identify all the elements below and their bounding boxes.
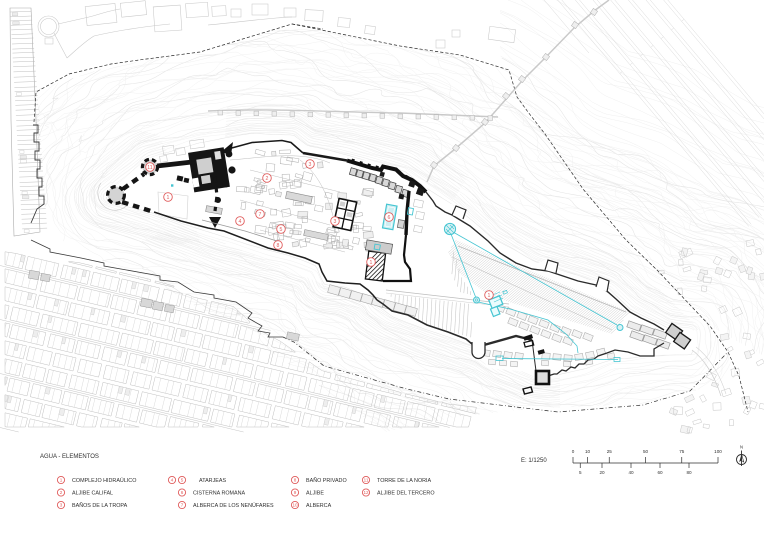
svg-text:8: 8 [294, 478, 297, 483]
svg-text:1: 1 [167, 195, 170, 201]
svg-text:ATARJEAS: ATARJEAS [199, 478, 226, 484]
svg-text:25: 25 [607, 449, 613, 454]
svg-text:9: 9 [294, 490, 297, 495]
svg-text:ALJIBE: ALJIBE [306, 491, 324, 497]
svg-text:100: 100 [714, 449, 722, 454]
svg-text:0: 0 [572, 449, 575, 454]
svg-text:4: 4 [171, 478, 174, 483]
svg-text:BAÑOS DE LA TROPA: BAÑOS DE LA TROPA [72, 502, 128, 509]
svg-text:3: 3 [334, 219, 337, 225]
svg-text:12: 12 [363, 490, 369, 495]
svg-text:8: 8 [277, 243, 280, 249]
svg-text:CISTERNA ROMANA: CISTERNA ROMANA [193, 491, 246, 497]
svg-text:3: 3 [60, 503, 63, 508]
svg-text:4: 4 [239, 219, 242, 225]
svg-text:40: 40 [628, 470, 634, 475]
svg-text:80: 80 [686, 470, 692, 475]
svg-text:ALJIBE DEL TERCERO: ALJIBE DEL TERCERO [377, 491, 435, 497]
svg-text:10: 10 [292, 503, 298, 508]
svg-text:ALJIBE CALIFAL: ALJIBE CALIFAL [72, 491, 113, 497]
svg-text:5: 5 [579, 470, 582, 475]
svg-text:6: 6 [181, 490, 184, 495]
svg-text:COMPLEJO HIDRAÚLICO: COMPLEJO HIDRAÚLICO [72, 477, 136, 484]
svg-text:E: 1/1250: E: 1/1250 [521, 458, 547, 464]
svg-text:7: 7 [181, 503, 184, 508]
svg-text:5: 5 [181, 478, 184, 483]
svg-text:11: 11 [147, 165, 152, 171]
svg-text:11: 11 [364, 478, 369, 483]
svg-text:TORRE DE LA NORIA: TORRE DE LA NORIA [377, 478, 432, 484]
svg-text:60: 60 [657, 470, 663, 475]
svg-text:1: 1 [370, 260, 373, 266]
svg-text:20: 20 [599, 470, 605, 475]
svg-text:ALBERCA: ALBERCA [306, 503, 332, 509]
svg-text:N: N [740, 445, 743, 450]
svg-text:2: 2 [266, 176, 269, 182]
svg-text:2: 2 [60, 490, 63, 495]
svg-text:50: 50 [643, 449, 649, 454]
svg-text:AGUA - ELEMENTOS: AGUA - ELEMENTOS [40, 454, 99, 460]
svg-text:ALBERCA DE LOS NENÚFARES: ALBERCA DE LOS NENÚFARES [193, 502, 274, 509]
svg-text:75: 75 [679, 449, 685, 454]
svg-text:7: 7 [259, 212, 262, 218]
svg-text:3: 3 [309, 162, 312, 168]
svg-text:1: 1 [488, 293, 491, 299]
svg-text:5: 5 [280, 227, 283, 233]
svg-text:1: 1 [60, 478, 63, 483]
svg-text:BAÑO PRIVADO: BAÑO PRIVADO [306, 477, 347, 484]
svg-text:10: 10 [585, 449, 591, 454]
svg-text:6: 6 [388, 215, 391, 221]
